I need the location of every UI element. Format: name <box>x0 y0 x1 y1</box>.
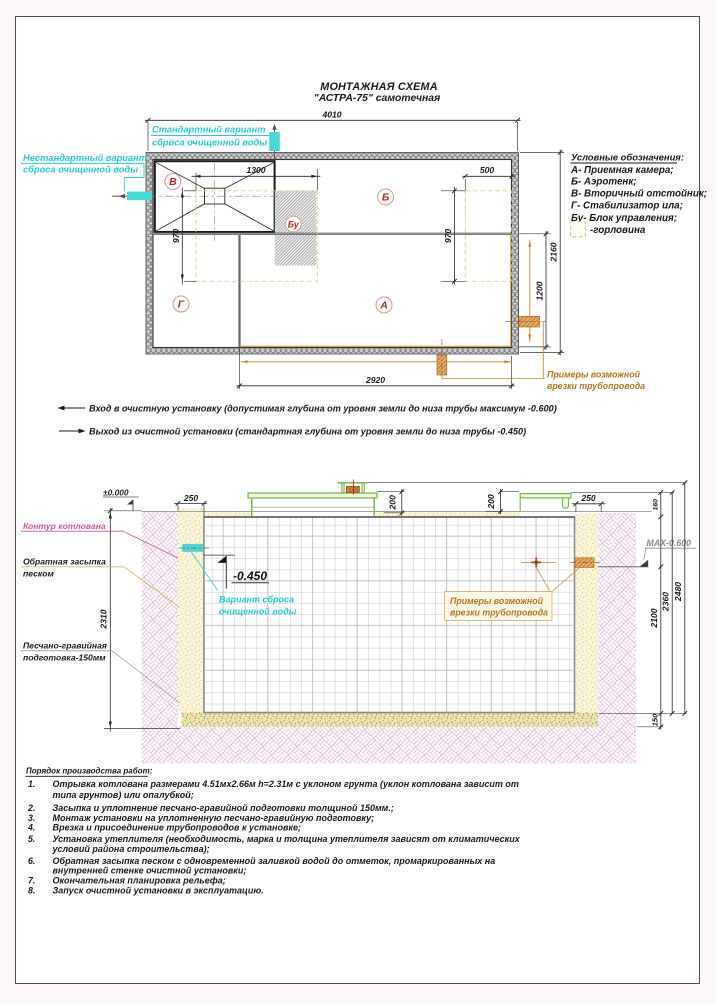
svg-text:Песчано-гравийная: Песчано-гравийная <box>23 641 107 651</box>
svg-text:Отрывка котлована размерами 4.: Отрывка котлована размерами 4.51мх2.66м … <box>53 779 519 789</box>
svg-text:-горловина: -горловина <box>590 225 646 236</box>
svg-text:условий района строительства);: условий района строительства); <box>52 844 210 854</box>
svg-text:250: 250 <box>183 493 199 503</box>
svg-text:8.: 8. <box>28 886 35 896</box>
svg-text:±0.000: ±0.000 <box>103 488 129 498</box>
svg-text:Б- Аэротенк;: Б- Аэротенк; <box>571 177 637 188</box>
svg-text:"АСТРА-75" самотечная: "АСТРА-75" самотечная <box>314 93 440 104</box>
svg-text:200: 200 <box>387 495 397 511</box>
svg-text:Г: Г <box>178 299 185 311</box>
svg-text:Окончательная планировка релье: Окончательная планировка рельефа; <box>53 876 226 886</box>
svg-text:Бу- Блок управления;: Бу- Блок управления; <box>571 213 677 224</box>
svg-text:врезки трубопровода: врезки трубопровода <box>547 381 645 391</box>
svg-text:сброса очищенной воды: сброса очищенной воды <box>152 138 267 148</box>
svg-text:Стандартный вариант: Стандартный вариант <box>152 125 266 135</box>
svg-text:150: 150 <box>650 713 659 726</box>
svg-text:внутренней стенке очистной уст: внутренней стенке очистной установки; <box>53 865 247 875</box>
svg-text:2100: 2100 <box>649 608 659 628</box>
svg-text:Врезка и присоединение трубопр: Врезка и присоединение трубопроводов к у… <box>53 822 302 832</box>
svg-text:-0.450: -0.450 <box>233 569 267 583</box>
svg-text:Вход в очистную установку (доп: Вход в очистную установку (допустимая гл… <box>89 403 557 413</box>
svg-text:Условные обозначения:: Условные обозначения: <box>571 152 684 163</box>
svg-text:1300: 1300 <box>246 165 265 175</box>
svg-text:Обратная засыпка песком с одно: Обратная засыпка песком с одновременной … <box>53 856 496 866</box>
svg-text:2160: 2160 <box>549 242 559 262</box>
svg-text:В: В <box>169 176 177 188</box>
svg-text:Засыпка и уплотнение песчано-г: Засыпка и уплотнение песчано-гравийной п… <box>53 803 394 813</box>
svg-text:250: 250 <box>580 493 596 503</box>
svg-text:4010: 4010 <box>321 110 341 120</box>
svg-text:песком: песком <box>23 569 55 579</box>
svg-text:Запуск очистной установки в эк: Запуск очистной установки в эксплуатацию… <box>53 886 264 896</box>
svg-text:Б: Б <box>382 192 390 204</box>
svg-text:В- Вторичный отстойник;: В- Вторичный отстойник; <box>571 189 707 200</box>
svg-text:2.: 2. <box>27 803 35 813</box>
svg-text:Вариант сброса: Вариант сброса <box>219 595 294 605</box>
svg-text:Г- Стабилизатор ила;: Г- Стабилизатор ила; <box>571 201 683 212</box>
svg-text:Нестандартный вариант: Нестандартный вариант <box>23 153 147 163</box>
svg-text:2920: 2920 <box>365 375 385 385</box>
svg-text:Примеры возможной: Примеры возможной <box>547 369 641 379</box>
svg-text:5.: 5. <box>28 834 35 844</box>
svg-text:970: 970 <box>443 229 453 244</box>
svg-text:Примеры возможной: Примеры возможной <box>450 596 544 606</box>
svg-text:врезки трубопровода: врезки трубопровода <box>450 608 548 618</box>
svg-text:Контур котлована: Контур котлована <box>23 521 106 531</box>
svg-text:1200: 1200 <box>534 281 544 300</box>
svg-text:2480: 2480 <box>673 582 683 602</box>
svg-text:А- Приемная камера;: А- Приемная камера; <box>570 165 674 176</box>
svg-text:200: 200 <box>486 494 496 510</box>
svg-text:160: 160 <box>652 499 659 511</box>
svg-text:Выход из очистной установки (с: Выход из очистной установки (стандартная… <box>89 426 526 436</box>
svg-text:2310: 2310 <box>99 609 109 629</box>
svg-text:сброса очищенной воды: сброса очищенной воды <box>23 165 138 175</box>
svg-text:Бу: Бу <box>288 220 300 230</box>
svg-text:типа грунтов) или опалубкой;: типа грунтов) или опалубкой; <box>53 790 194 800</box>
svg-text:500: 500 <box>480 165 495 175</box>
svg-text:4.: 4. <box>27 822 35 832</box>
svg-text:Установка утеплителя (необходи: Установка утеплителя (необходимость, мар… <box>53 834 521 844</box>
svg-text:970: 970 <box>171 229 181 244</box>
svg-text:7.: 7. <box>28 876 35 886</box>
svg-text:А: А <box>379 300 388 312</box>
svg-text:МОНТАЖНАЯ СХЕМА: МОНТАЖНАЯ СХЕМА <box>320 81 438 93</box>
svg-text:подготовка-150мм: подготовка-150мм <box>23 653 106 663</box>
svg-text:Порядок производства работ:: Порядок производства работ: <box>26 767 153 776</box>
svg-text:6.: 6. <box>28 856 35 866</box>
svg-text:Обратная засыпка: Обратная засыпка <box>23 557 106 567</box>
svg-text:очищенной воды: очищенной воды <box>219 607 297 617</box>
svg-text:1.: 1. <box>28 779 35 789</box>
svg-text:2360: 2360 <box>661 592 671 612</box>
